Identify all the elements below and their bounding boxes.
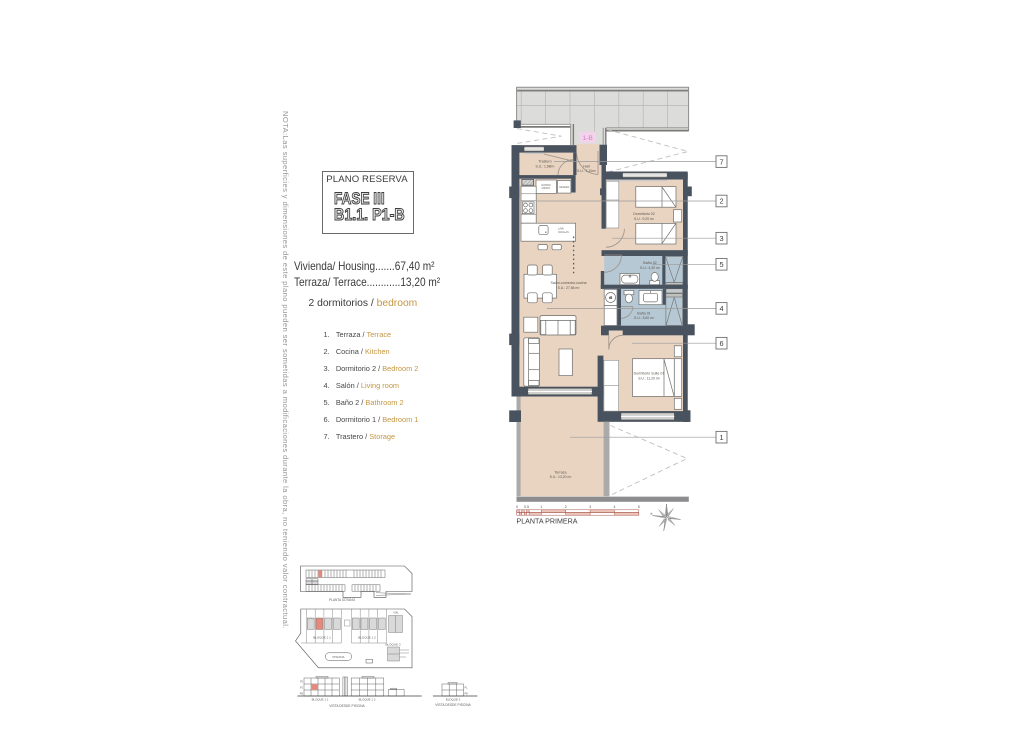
svg-text:VIAL: VIAL — [393, 612, 399, 615]
svg-text:BLOQUE 3: BLOQUE 3 — [385, 643, 400, 647]
svg-text:Terraza: Terraza — [555, 470, 567, 474]
svg-text:4: 4 — [614, 505, 616, 509]
svg-text:S.U.: 27,66 m²: S.U.: 27,66 m² — [558, 286, 581, 290]
svg-text:BLOQUE 1 1: BLOQUE 1 1 — [312, 697, 329, 701]
svg-text:NEVERA: NEVERA — [559, 186, 569, 189]
svg-text:BLOQUE 1 2: BLOQUE 1 2 — [358, 636, 376, 640]
svg-text:Hall: Hall — [583, 164, 589, 168]
svg-text:VISTA DESDE PISCINA: VISTA DESDE PISCINA — [435, 703, 471, 707]
svg-text:MICRO: MICRO — [542, 186, 551, 190]
svg-text:1: 1 — [540, 505, 542, 509]
svg-text:1: 1 — [719, 433, 723, 442]
svg-text:5: 5 — [638, 505, 640, 509]
svg-text:S.U.: 1,10m²: S.U.: 1,10m² — [577, 169, 597, 173]
svg-text:P1: P1 — [465, 687, 469, 690]
svg-text:3: 3 — [719, 234, 723, 243]
svg-text:7: 7 — [719, 157, 723, 166]
svg-text:5: 5 — [719, 260, 723, 269]
svg-text:S.U.: 9,20 m²: S.U.: 9,20 m² — [634, 217, 655, 221]
svg-text:Trastero: Trastero — [538, 160, 551, 164]
svg-text:PB: PB — [300, 693, 304, 696]
svg-text:S.U.: 4,30 m²: S.U.: 4,30 m² — [640, 266, 661, 270]
svg-text:Baño 01: Baño 01 — [637, 311, 650, 315]
svg-text:1-B: 1-B — [582, 135, 593, 142]
svg-text:HORNO: HORNO — [541, 183, 551, 187]
svg-text:2: 2 — [565, 505, 567, 509]
svg-text:6: 6 — [719, 339, 723, 348]
svg-text:S.U.: 3,60 m²: S.U.: 3,60 m² — [634, 316, 655, 320]
svg-text:S.U.: 1,98m²: S.U.: 1,98m² — [535, 164, 555, 168]
svg-text:Dormitorio 02: Dormitorio 02 — [633, 212, 655, 216]
svg-text:0: 0 — [516, 505, 518, 509]
svg-text:BLOQUE 1 2: BLOQUE 1 2 — [359, 697, 376, 701]
svg-text:4: 4 — [719, 304, 723, 313]
svg-text:BLOQUE 1 1: BLOQUE 1 1 — [313, 636, 331, 640]
svg-text:3: 3 — [589, 505, 591, 509]
svg-text:VISTA DESDE PISCINA: VISTA DESDE PISCINA — [329, 704, 365, 708]
svg-text:S.U.: 13,20 m²: S.U.: 13,20 m² — [550, 475, 573, 479]
svg-text:2: 2 — [719, 197, 723, 206]
svg-text:S.U.: 11,20 m²: S.U.: 11,20 m² — [638, 377, 660, 381]
svg-text:Salón-comedor-cocina: Salón-comedor-cocina — [551, 281, 587, 285]
svg-text:PISCINA: PISCINA — [332, 655, 344, 659]
svg-text:PLANTA SÓTANO: PLANTA SÓTANO — [329, 597, 356, 602]
svg-text:BLOQUE 3: BLOQUE 3 — [446, 697, 461, 701]
svg-text:PLANTA PRIMERA: PLANTA PRIMERA — [517, 517, 578, 525]
svg-text:PB: PB — [465, 693, 469, 696]
svg-text:P2: P2 — [300, 681, 304, 684]
svg-text:VAJILLAS: VAJILLAS — [558, 231, 569, 234]
svg-text:P1: P1 — [300, 687, 304, 690]
svg-text:0.5: 0.5 — [524, 505, 529, 509]
svg-text:Dormitorio Suite 01: Dormitorio Suite 01 — [634, 371, 665, 375]
